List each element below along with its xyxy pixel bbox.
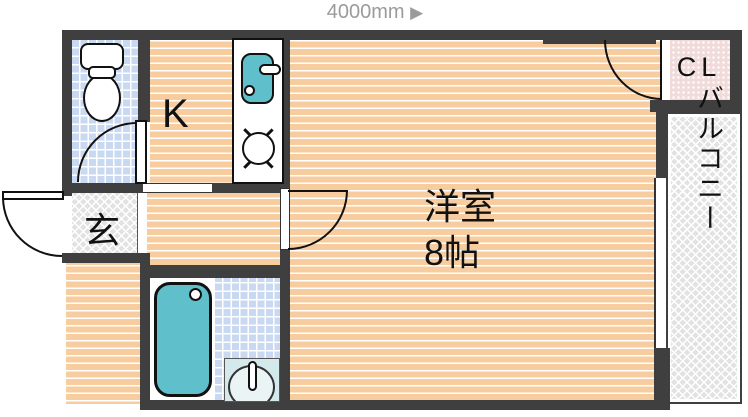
wall-right-upper (656, 100, 668, 180)
bathtub-icon (154, 282, 212, 397)
right-arrow-icon: ▶ (410, 3, 423, 22)
western-room-label: 洋室 8帖 (424, 184, 496, 276)
wall-entrance-bottom (62, 253, 150, 263)
wall-closet-right (730, 30, 742, 112)
stove-burner-icon (242, 132, 275, 165)
front-door-opening (62, 196, 72, 253)
dimension-label: 4000mm ▶ (250, 1, 500, 24)
faucet-icon (259, 64, 281, 75)
wall-bottom (140, 400, 670, 410)
western-room-size: 8帖 (424, 230, 496, 276)
kitchen-sink-icon (241, 53, 274, 104)
kitchen-label: K (162, 92, 189, 137)
wall-left (62, 30, 72, 196)
toilet-neck (88, 66, 116, 79)
wall-right-lower (654, 348, 670, 410)
washbasin-faucet (248, 361, 257, 391)
closet-door-opening (662, 40, 670, 100)
balcony-window (654, 178, 666, 348)
kitchen-opening (143, 183, 212, 193)
front-door-swing (2, 197, 62, 257)
wall-bath-room (280, 250, 290, 405)
entrance-label: 玄 (84, 202, 120, 254)
closet-label: CL (672, 52, 726, 83)
dimension-text: 4000mm (327, 1, 405, 23)
wall-toilet-right (138, 40, 150, 122)
western-room-name: 洋室 (424, 184, 496, 230)
entrance-step (137, 193, 147, 253)
washbasin-icon (224, 358, 280, 402)
wall-hall-bath (140, 265, 290, 278)
balcony-label: バルコニー (689, 84, 728, 374)
toilet-bowl (83, 74, 121, 122)
sink-drain (244, 85, 255, 96)
bathtub-faucet (189, 288, 202, 301)
floor-plan: 4000mm ▶ (0, 0, 748, 417)
